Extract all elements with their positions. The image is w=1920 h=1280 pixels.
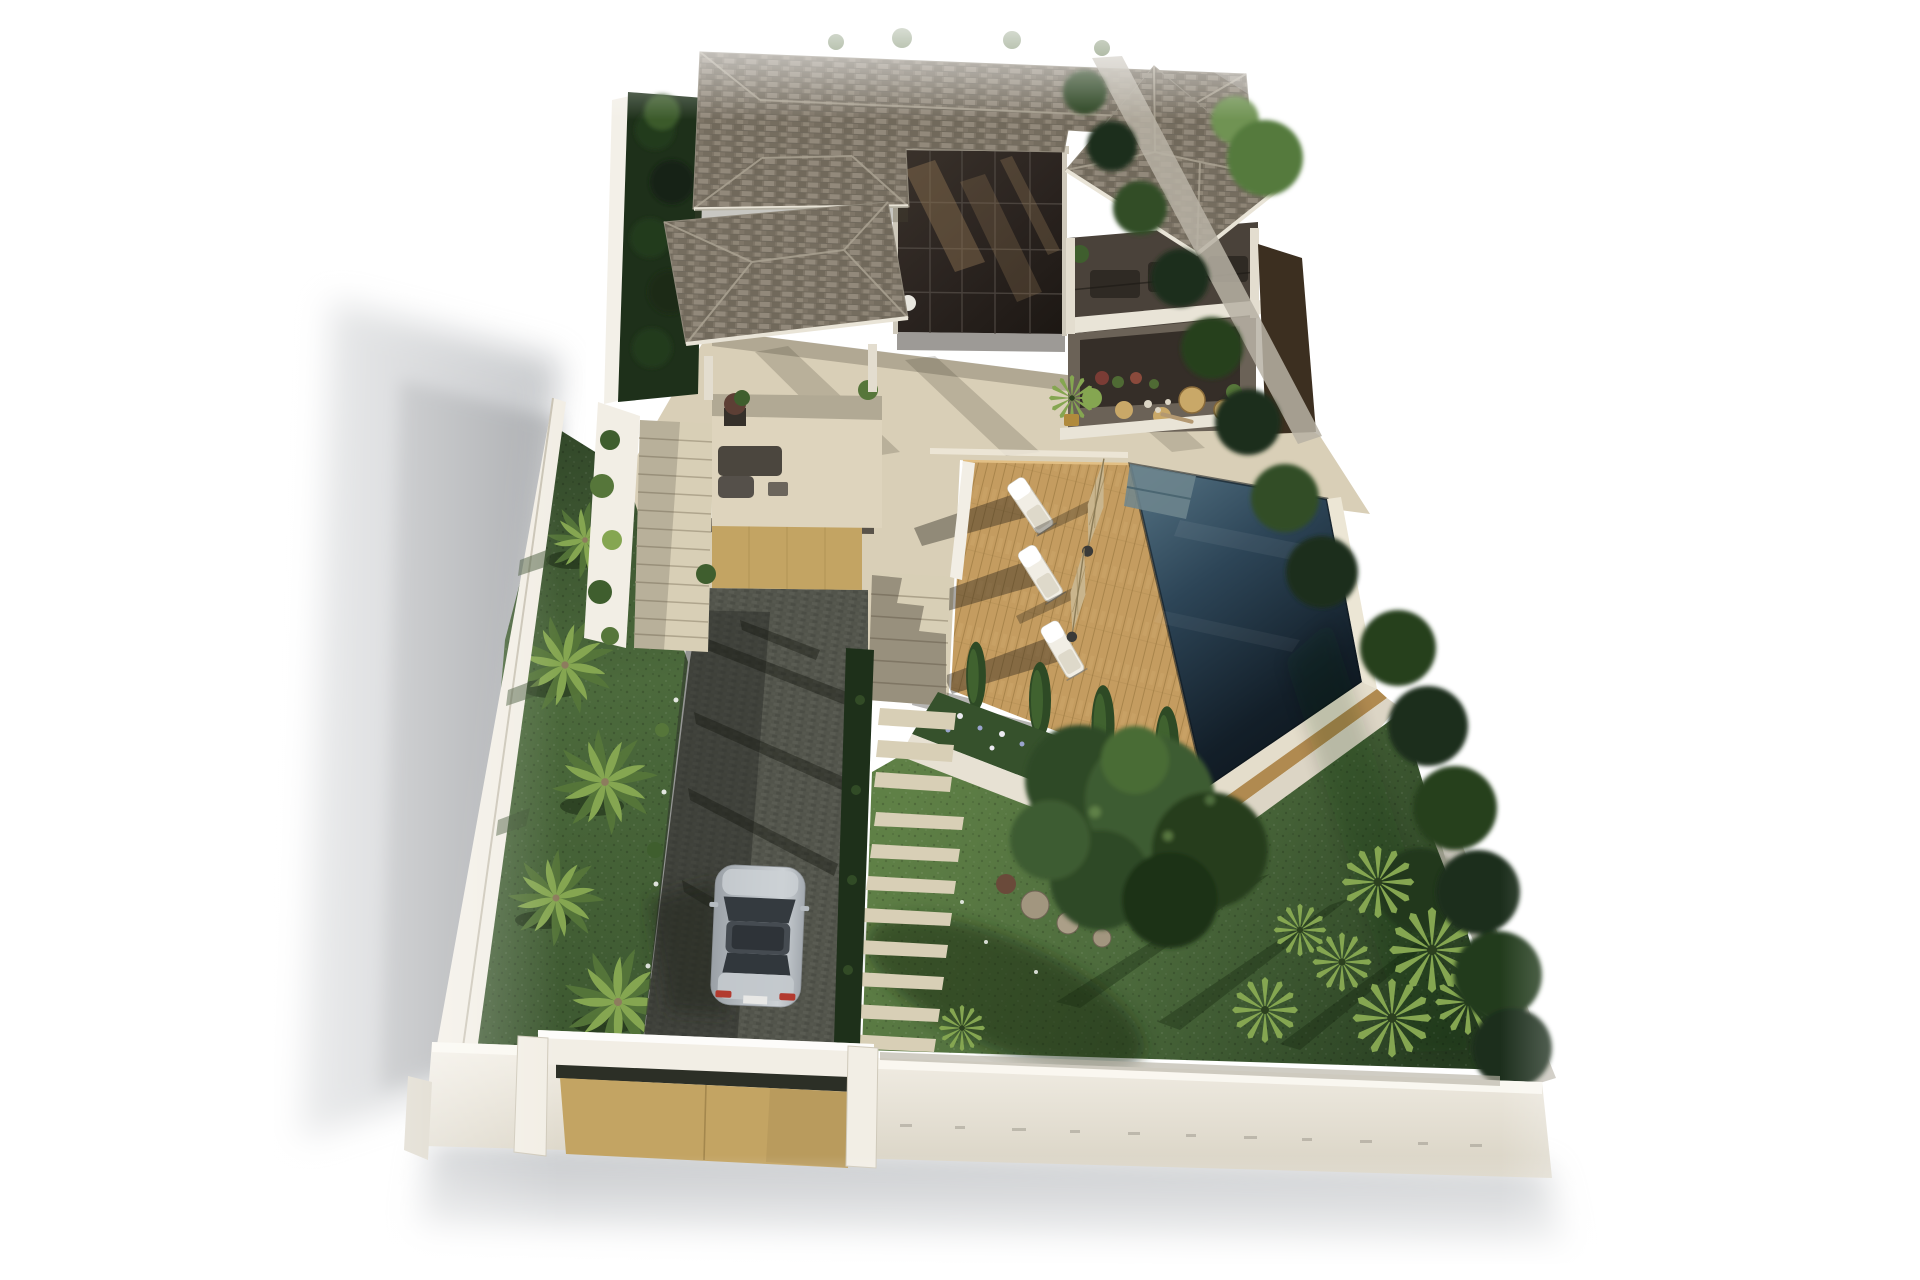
car-mirror-left [709, 902, 718, 907]
fade-left [0, 0, 560, 1280]
porch-sofa-chaise [718, 476, 754, 498]
car-hood [722, 868, 799, 897]
potted-bush [696, 564, 716, 584]
wicker-basket [1179, 387, 1205, 413]
porch-column [704, 356, 713, 400]
porch-column [868, 344, 877, 392]
car-license-plate [743, 995, 767, 1004]
porch-sofa [718, 446, 782, 476]
car-windshield [723, 896, 796, 923]
shrub [647, 842, 663, 858]
car-rear-window [722, 952, 791, 975]
porch-coffee-table [768, 482, 788, 496]
stair-treads [634, 420, 714, 652]
car-mirror-right [800, 906, 809, 911]
gold-plant-pot [1064, 414, 1079, 426]
fade-bottom [0, 1150, 1920, 1280]
glass-atrium [893, 146, 1069, 352]
porch-plant-green [734, 390, 750, 406]
gate-pillar-right [846, 1046, 878, 1168]
entrance-gate [514, 1030, 878, 1168]
atrium-floor-shadow [897, 332, 1065, 352]
villa-aerial-render [0, 0, 1920, 1280]
render-canvas [0, 0, 1920, 1280]
car-taillight-left [715, 990, 731, 998]
cypress-tree [1029, 662, 1051, 738]
shrub [655, 723, 669, 737]
cypress-tree [966, 642, 986, 710]
entrance-stairs [584, 402, 716, 652]
car-sunroof [731, 925, 784, 951]
pavilion-column [1066, 238, 1075, 334]
car-taillight-right [779, 993, 795, 1001]
